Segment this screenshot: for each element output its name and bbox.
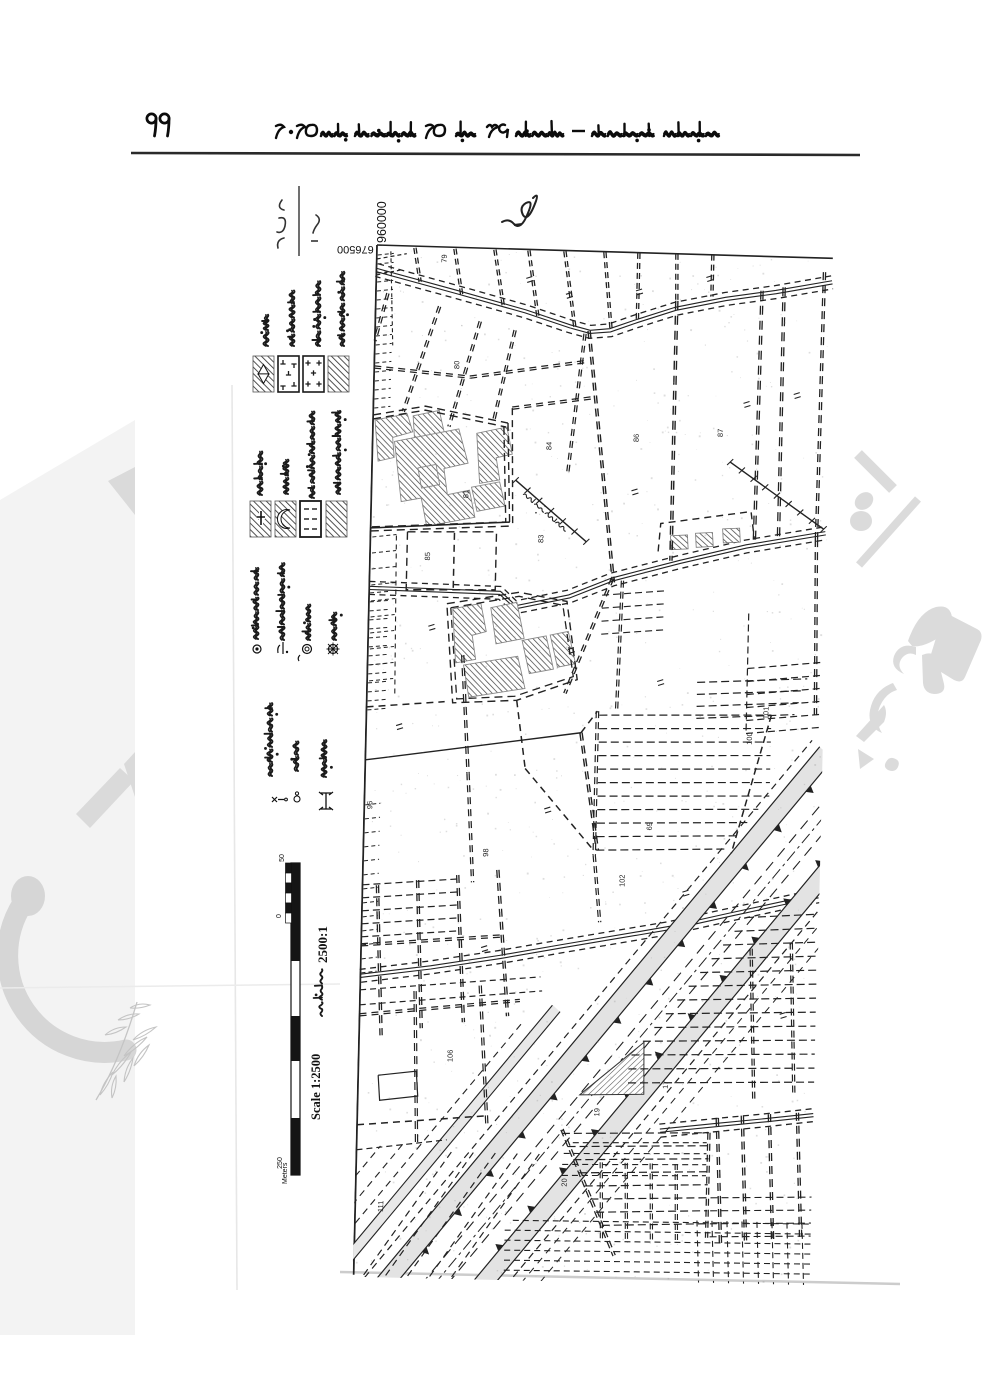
svg-text:676500: 676500: [337, 243, 374, 255]
svg-text:101: 101: [761, 707, 770, 720]
svg-text:Meters: Meters: [282, 1162, 289, 1184]
svg-text:111: 111: [376, 1201, 385, 1213]
svg-text:85: 85: [423, 552, 432, 561]
svg-text:2500:1: 2500:1: [315, 926, 330, 963]
svg-text:98: 98: [481, 848, 490, 857]
svg-text:79: 79: [440, 254, 449, 263]
svg-text:17: 17: [661, 1080, 670, 1089]
svg-text:84: 84: [544, 442, 553, 451]
svg-text:80: 80: [452, 361, 461, 370]
svg-text:106: 106: [445, 1050, 454, 1063]
svg-text:81: 81: [461, 490, 470, 499]
svg-text:86: 86: [632, 434, 641, 443]
svg-text:69: 69: [645, 822, 654, 831]
svg-text:0: 0: [276, 914, 283, 918]
svg-text:100: 100: [745, 732, 754, 745]
svg-text:83: 83: [536, 535, 545, 544]
svg-text:96: 96: [365, 801, 374, 810]
svg-text:19: 19: [592, 1108, 601, 1117]
svg-text:960000: 960000: [375, 201, 389, 243]
svg-text:102: 102: [617, 874, 626, 887]
svg-text:87: 87: [716, 429, 725, 438]
svg-text:Scale 1:2500: Scale 1:2500: [309, 1054, 323, 1120]
svg-text:20: 20: [560, 1178, 569, 1187]
svg-text:50: 50: [279, 854, 286, 862]
